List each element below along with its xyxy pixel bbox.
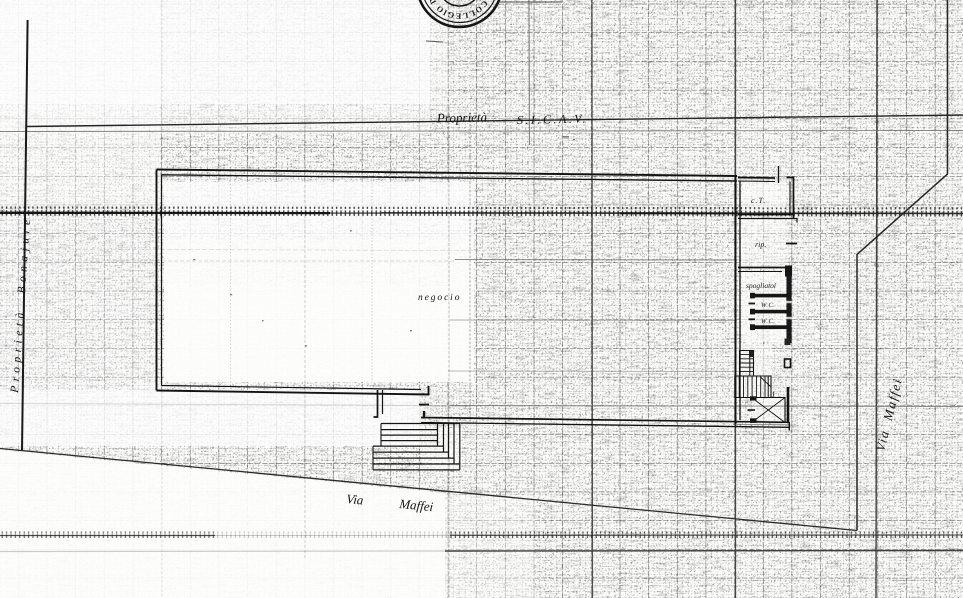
svg-text:W.C.: W.C. — [761, 318, 775, 325]
svg-text:spogliatoi: spogliatoi — [746, 281, 776, 290]
svg-text:S.I.C.A.V.: S.I.C.A.V. — [517, 112, 588, 127]
svg-text:Via: Via — [346, 491, 365, 508]
svg-text:DI: DI — [452, 0, 461, 2]
svg-text:Proprietà: Proprietà — [436, 109, 488, 125]
svg-text:1: 1 — [771, 390, 776, 400]
svg-text:c.T.: c.T. — [751, 196, 766, 205]
svg-text:negocio: negocio — [418, 293, 461, 303]
svg-text:rip.: rip. — [755, 240, 766, 249]
svg-text:W.C.: W.C. — [761, 302, 775, 309]
